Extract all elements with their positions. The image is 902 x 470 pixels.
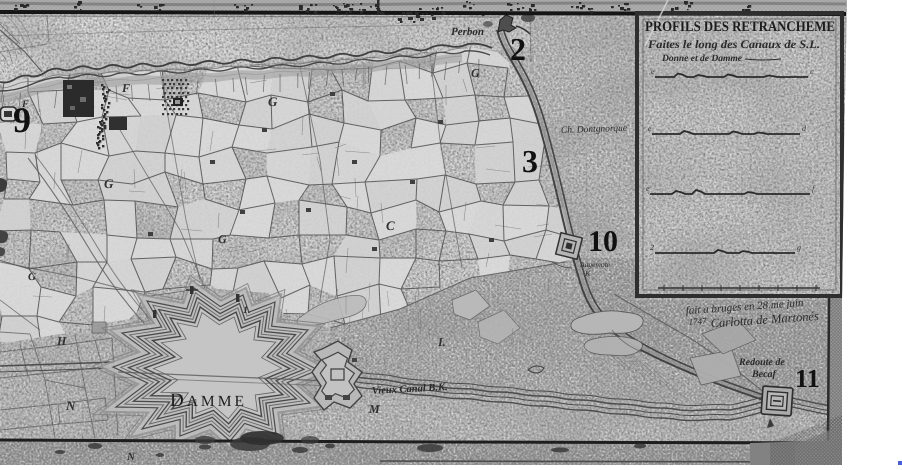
svg-text:Faites le long des Canaux de S: Faites le long des Canaux de S.L. [647, 39, 820, 51]
svg-text:c: c [810, 67, 814, 76]
svg-text:PROFILS DES RETRANCHEME: PROFILS DES RETRANCHEME [645, 19, 835, 35]
svg-text:2: 2 [650, 243, 654, 252]
svg-text:N: N [65, 398, 76, 413]
svg-text:2: 2 [510, 31, 526, 67]
svg-text:1747: 1747 [688, 316, 707, 327]
svg-text:Perbon: Perbon [451, 26, 484, 38]
svg-text:G: G [218, 232, 227, 246]
svg-text:3: 3 [522, 143, 538, 179]
svg-text:N: N [126, 451, 136, 463]
svg-text:G: G [471, 66, 480, 80]
svg-text:Redoute de: Redoute de [738, 357, 785, 368]
svg-text:H: H [56, 334, 67, 348]
svg-text:F: F [21, 99, 29, 110]
svg-text:G: G [28, 271, 36, 283]
svg-text:DAMME: DAMME [170, 390, 247, 411]
svg-text:Aagemote: Aagemote [579, 260, 611, 269]
svg-text:10: 10 [588, 225, 618, 258]
svg-text:F: F [121, 81, 130, 95]
svg-text:e: e [651, 67, 655, 76]
svg-text:1.: 1. [243, 305, 251, 316]
svg-text:M: M [368, 402, 380, 416]
svg-text:Becaf: Becaf [751, 369, 778, 380]
svg-text:11: 11 [795, 364, 820, 393]
svg-text:g: g [797, 243, 801, 252]
svg-text:C: C [386, 218, 395, 233]
svg-text:G: G [104, 176, 114, 191]
svg-text:e: e [646, 184, 650, 193]
svg-text:Donne et de Damme: Donne et de Damme [661, 54, 743, 64]
svg-text:G: G [268, 94, 278, 109]
svg-text:e: e [648, 124, 652, 133]
svg-text:I.: I. [437, 335, 446, 349]
svg-text:K: K [584, 269, 591, 278]
